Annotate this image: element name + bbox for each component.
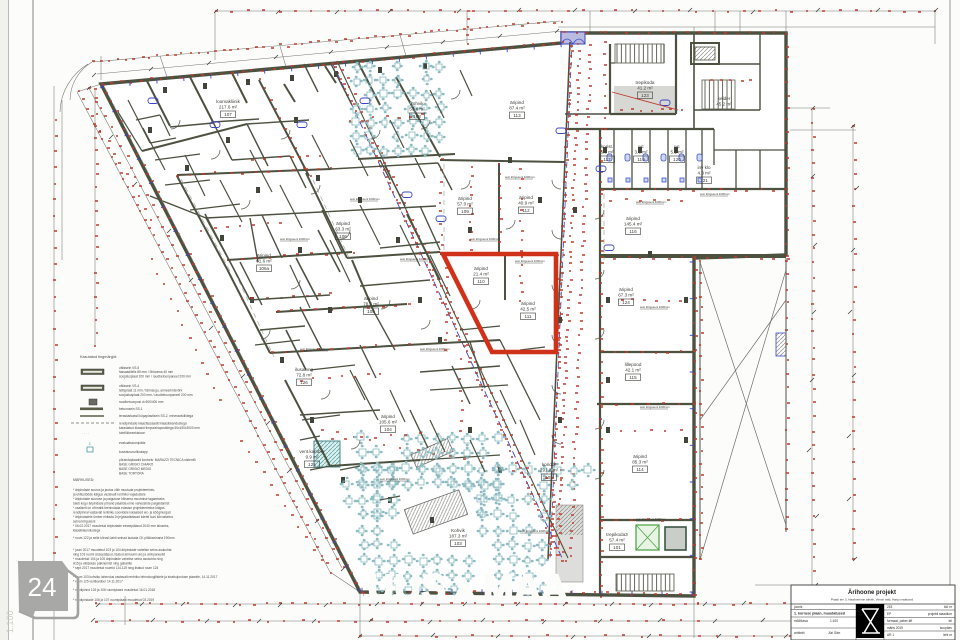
svg-text:sein kõrguseni 3200mm: sein kõrguseni 3200mm [640, 405, 670, 409]
svg-text:sein kõrguseni 3200mm: sein kõrguseni 3200mm [350, 197, 380, 201]
svg-text:* sept 2017 muudetud ruumid 11: * sept 2017 muudetud ruumid 114-115 ning… [73, 566, 159, 570]
svg-text:äripind: äripind [381, 414, 395, 419]
svg-text:124: 124 [622, 300, 630, 305]
svg-text:107: 107 [224, 112, 232, 117]
svg-text:rendipinnal vastavalt rentniku: rendipinnal vastavalt rentniku soovidele… [73, 511, 171, 515]
svg-text:korist.: korist. [601, 144, 613, 149]
svg-text:40.9 m²: 40.9 m² [518, 200, 534, 205]
svg-text:äripind: äripind [519, 195, 533, 200]
svg-text:6.0 m²: 6.0 m² [600, 149, 613, 154]
svg-text:87.4 m²: 87.4 m² [509, 105, 525, 110]
svg-text:⇩: ⇩ [88, 441, 91, 446]
svg-text:soojustusplaat 200 mm / raudbe: soojustusplaat 200 mm / raudbetoonpaneel… [119, 393, 193, 397]
svg-text:äripind: äripind [626, 216, 640, 221]
svg-text:187.3 m²: 187.3 m² [449, 533, 468, 538]
svg-text:leht nr: leht nr [943, 633, 953, 637]
svg-text:formaat, paber-tiff: formaat, paber-tiff [887, 619, 912, 623]
svg-text:sein kõrguseni 3200mm: sein kõrguseni 3200mm [505, 175, 535, 179]
svg-text:24: 24 [28, 572, 57, 602]
svg-text:äripind: äripind [633, 454, 647, 459]
svg-text:145.4 m²: 145.4 m² [624, 221, 643, 226]
svg-text:* muudetud 104 ja 105 äripinda: * muudetud 104 ja 105 äripindade vahelis… [73, 557, 163, 561]
svg-text:* osaliselt on võimalik teenin: * osaliselt on võimalik teenindada edasi… [73, 506, 165, 510]
svg-text:112: 112 [522, 208, 530, 213]
svg-text:äripind: äripind [336, 221, 350, 226]
svg-text:217.6 m²: 217.6 m² [219, 104, 238, 109]
svg-text:tellisplaat 11 mm / tärmsegu,: tellisplaat 11 mm / tärmsegu, armeerimis… [119, 389, 183, 393]
svg-text:115: 115 [629, 375, 637, 380]
svg-text:41.2 m²: 41.2 m² [637, 85, 653, 90]
svg-text:* ruum 122 ja selle kõrval üah: * ruum 122 ja selle kõrval üahti seinad … [73, 536, 175, 540]
svg-text:105.6 m²: 105.6 m² [379, 419, 398, 424]
svg-text:UUS▲MAA: UUS▲MAA [368, 567, 569, 608]
svg-text:äripind: äripind [474, 266, 488, 271]
svg-text:tuletõkkesektsioon: tuletõkkesektsioon [119, 431, 145, 435]
svg-text:3.0 m²: 3.0 m² [634, 149, 647, 154]
svg-text:mõõtkava: mõõtkava [794, 619, 808, 623]
svg-text:BASE GRIGIO CHIARO: BASE GRIGIO CHIARO [119, 463, 154, 467]
svg-text:120: 120 [673, 157, 681, 162]
svg-text:57.0 m²: 57.0 m² [457, 201, 473, 206]
svg-text:trepikoda: trepikoda [636, 80, 655, 85]
svg-text:106a: 106a [259, 266, 270, 271]
svg-text:Paadi tee 3, Haabneeme alevik,: Paadi tee 3, Haabneeme alevik, Viimsi va… [831, 598, 913, 602]
svg-text:äripind: äripind [458, 196, 472, 201]
svg-text:äripind: äripind [619, 287, 633, 292]
svg-text:seina kõrguseni: seina kõrguseni [73, 520, 96, 524]
svg-text:inv klo: inv klo [697, 165, 710, 170]
svg-text:* äripindade suurus ja jaotus: * äripindade suurus ja jaotus võib muutu… [73, 488, 155, 492]
svg-text:78.4 m²: 78.4 m² [363, 301, 379, 306]
svg-text:21.4 m²: 21.4 m² [473, 271, 489, 276]
svg-text:* 06.02.2017 muudetud äripinda: * 06.02.2017 muudetud äripindade eessepä… [73, 524, 169, 528]
svg-text:loomakliinik: loomakliinik [216, 99, 240, 104]
svg-text:Jüri Siim: Jüri Siim [828, 631, 841, 635]
svg-text:45.2 m²: 45.2 m² [716, 101, 732, 106]
svg-text:tuleb kogu äripindade põrand p: tuleb kogu äripindade põrand plaatida en… [73, 502, 170, 506]
svg-text:* rendipinnd 126 ja 106 ruumip: * rendipinnd 126 ja 106 ruumiplaani muud… [73, 588, 155, 592]
svg-text:* äripindadele ümber ehitada 2: * äripindadele ümber ehitada 2x(e)plaadi… [73, 515, 173, 519]
svg-text:sein kõrguseni 3200mm: sein kõrguseni 3200mm [470, 237, 500, 241]
svg-text:lillepood: lillepood [625, 362, 642, 367]
svg-text:* ruum 103 kohviku lahendus va: * ruum 103 kohviku lahendus vastavalt re… [73, 575, 218, 579]
svg-text:109: 109 [461, 209, 469, 214]
svg-text:67.3 m²: 67.3 m² [618, 292, 634, 297]
svg-text:108: 108 [413, 114, 421, 119]
svg-text:karastatud klaasid timpurahapo: karastatud klaasid timpurahapostidega 60… [119, 426, 200, 430]
svg-text:teraskarkassil küpaplastisein: teraskarkassil küpaplastisein SS-2, mine… [119, 414, 193, 418]
svg-text:sein kõrguseni 3200mm: sein kõrguseni 3200mm [515, 259, 545, 263]
svg-text:85.3 m²: 85.3 m² [632, 459, 648, 464]
svg-text:joonis: joonis [793, 605, 803, 609]
svg-text:raudbetoonpost d=500/400 mm: raudbetoonpost d=500/400 mm [119, 400, 164, 404]
svg-text:trepikoda3: trepikoda3 [606, 532, 628, 537]
svg-text:betoonsein SS-1: betoonsein SS-1 [119, 407, 143, 411]
svg-text:215: 215 [887, 605, 893, 609]
svg-text:evakuatsioonipääs: evakuatsioonipääs [119, 441, 146, 445]
svg-text:tel: tel [949, 619, 953, 623]
svg-text:sein kõrguseni 3200mm: sein kõrguseni 3200mm [280, 237, 310, 241]
svg-text:4.3 m²: 4.3 m² [697, 170, 710, 175]
svg-text:106: 106 [339, 234, 347, 239]
svg-text:* ruum 125 ventkamber 14.11.20: * ruum 125 ventkamber 14.11.2017 [73, 580, 123, 584]
svg-text:ning 103 ruumi sissepääsud, li: ning 103 ruumi sissepääsud, lisatud abir… [73, 553, 165, 557]
svg-text:kelder: kelder [718, 96, 731, 101]
svg-text:119: 119 [637, 157, 645, 162]
svg-text:märts 2019: märts 2019 [887, 626, 903, 630]
svg-text:MÄRKUSED:: MÄRKUSED: [73, 478, 94, 482]
svg-text:126: 126 [300, 380, 308, 385]
svg-text:soojutusplaat 200 mm / raudbet: soojutusplaat 200 mm / raudbetoonpaneel … [119, 375, 191, 379]
svg-text:äripind: äripind [364, 296, 378, 301]
svg-text:äripind: äripind [257, 253, 271, 258]
svg-text:72.8 m²: 72.8 m² [296, 372, 312, 377]
svg-text:äripind: äripind [521, 301, 535, 306]
svg-text:A15 ja välisükse paiknemist ni: A15 ja välisükse paiknemist ning gabarii… [73, 562, 132, 566]
svg-text:Ärihoone projekt: Ärihoone projekt [848, 589, 896, 596]
svg-text:sein kõrguseni 3200mm: sein kõrguseni 3200mm [400, 257, 430, 261]
svg-text:5.5 m²: 5.5 m² [670, 149, 683, 154]
svg-text:61.6 m²: 61.6 m² [256, 258, 272, 263]
svg-text:114: 114 [636, 467, 644, 472]
svg-text:121: 121 [700, 178, 708, 183]
svg-text:9.9 m²: 9.9 m² [305, 454, 318, 459]
svg-text:* äripindade suuruse ja paigut: * äripindade suuruse ja paigutuse hilise… [73, 497, 165, 501]
svg-text:arhitekt: arhitekt [794, 631, 805, 635]
svg-text:63.3 m²: 63.3 m² [335, 226, 351, 231]
svg-text:sein kõrguseni 3200mm: sein kõrguseni 3200mm [636, 517, 666, 521]
svg-text:1:100: 1:100 [830, 619, 838, 623]
svg-text:välissein VS-4: välissein VS-4 [119, 384, 139, 388]
svg-text:* rendipindade 106 ja 107 ruum: * rendipindade 106 ja 107 ruumiplaani mu… [73, 598, 154, 602]
svg-text:rendipindade klaasfassaadid kl: rendipindade klaasfassaadid klaaslükandu… [119, 422, 187, 426]
svg-text:42.1 m²: 42.1 m² [625, 367, 641, 372]
svg-text:Kohvik: Kohvik [451, 528, 465, 533]
svg-text:kohvik: kohvik [410, 101, 424, 106]
svg-text:BASE GRIGIO MEDIO: BASE GRIGIO MEDIO [119, 467, 152, 471]
svg-text:põrandaplaadid kontoris: MARAZ: põrandaplaadid kontoris: MARAZZI TECNICA… [119, 458, 196, 462]
svg-text:projekti staadium: projekti staadium [928, 612, 952, 616]
svg-text:sein kõrguseni 3200mm: sein kõrguseni 3200mm [520, 529, 550, 533]
svg-text:113: 113 [513, 113, 521, 118]
svg-text:kuupäev: kuupäev [940, 626, 952, 630]
svg-text:1. korruse plaan, muudatused: 1. korruse plaan, muudatused [794, 612, 845, 616]
svg-text:57.6 m²: 57.6 m² [409, 106, 425, 111]
svg-text:sein kõrguseni 3200mm: sein kõrguseni 3200mm [640, 305, 670, 309]
svg-text:105: 105 [367, 309, 375, 314]
svg-text:töö nr: töö nr [944, 605, 953, 609]
svg-text:104: 104 [384, 427, 392, 432]
svg-text:1:100: 1:100 [5, 610, 15, 633]
svg-text:äripind: äripind [510, 100, 524, 105]
svg-text:sein kõrguseni 3200mm: sein kõrguseni 3200mm [300, 347, 330, 351]
svg-text:Kasutatud tingmärgid:: Kasutatud tingmärgid: [80, 355, 117, 359]
svg-text:117: 117 [603, 157, 611, 162]
svg-text:AR 1: AR 1 [887, 633, 894, 637]
svg-text:111: 111 [525, 314, 532, 319]
svg-text:ilusalong: ilusalong [295, 367, 314, 372]
svg-text:sein kõrguseni 3200mm: sein kõrguseni 3200mm [700, 192, 730, 196]
svg-text:101: 101 [613, 545, 621, 550]
svg-text:103: 103 [454, 541, 462, 546]
svg-text:102: 102 [545, 475, 553, 480]
svg-text:110: 110 [477, 279, 485, 284]
svg-text:· · · ·: · · · · [82, 432, 89, 436]
svg-text:vent.kamber: vent.kamber [299, 449, 325, 454]
svg-text:EP: EP [887, 612, 891, 616]
svg-text:ja ehitustööde käigus vastaval: ja ehitustööde käigus vastavalt rentniku… [72, 493, 146, 497]
svg-text:koridor: koridor [542, 462, 557, 467]
svg-text:klaasiklaendustega: klaasiklaendustega [73, 529, 100, 533]
svg-text:fassaadilelis 85 mm / õhkvama: fassaadilelis 85 mm / õhkvama 40 mm [119, 370, 174, 374]
svg-text:* juuni 2017 muudetud 103 ja 1: * juuni 2017 muudetud 103 ja 104 äripind… [73, 548, 172, 552]
svg-text:sein kõrguseni 3200mm: sein kõrguseni 3200mm [380, 477, 410, 481]
svg-text:57.4 m²: 57.4 m² [609, 537, 625, 542]
svg-text:wc: wc [638, 144, 644, 149]
svg-text:125: 125 [308, 462, 316, 467]
svg-text:291.8 m²: 291.8 m² [540, 467, 559, 472]
svg-text:BASE TORTORA: BASE TORTORA [119, 472, 145, 476]
svg-text:123: 123 [641, 93, 649, 98]
svg-text:kustutusvoolikukapp: kustutusvoolikukapp [119, 450, 148, 454]
svg-text:116: 116 [629, 229, 637, 234]
svg-text:42.5 m²: 42.5 m² [520, 306, 536, 311]
svg-text:wc: wc [674, 144, 680, 149]
